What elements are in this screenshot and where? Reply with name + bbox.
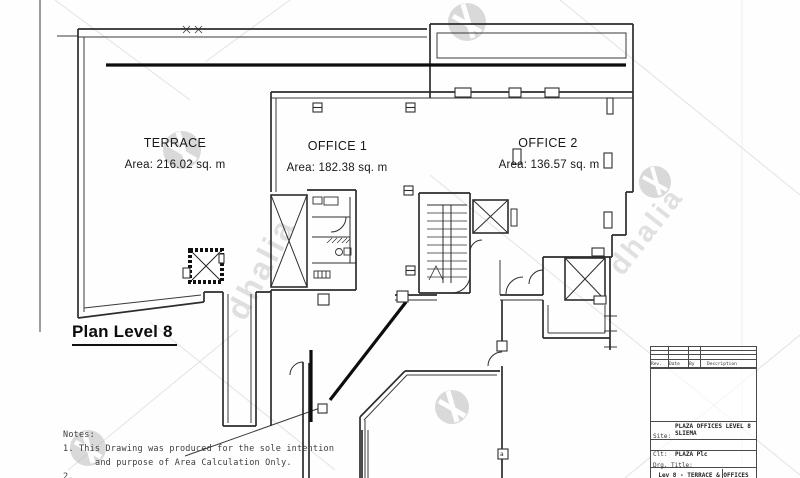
revision-description-area [651,369,756,422]
lift-shafts [271,195,605,300]
notes-line-2: and purpose of Area Calculation Only. [95,458,292,468]
terrace-area: Area: 216.02 sq. m [95,159,255,171]
terrace-label: TERRACE [112,136,238,150]
office1-label: OFFICE 1 [275,139,400,153]
office2-area: Area: 136.57 sq. m [474,159,624,171]
drawing-number-row: Drg. No. [651,468,756,478]
office2-label: OFFICE 2 [488,136,608,150]
title-block: Rev. Date By Description Site: PLAZA OFF… [650,346,757,478]
notes-heading: Notes: [63,430,95,440]
plan-title: Plan Level 8 [72,322,177,346]
floor-plan-page: dhalia dhalia [0,0,800,478]
description-header: Description [701,361,742,367]
staircase [427,205,467,283]
drawing-title-label: Drg. Title: [653,462,693,469]
notes-line-3: 2. [63,472,74,478]
inner-lines [40,0,633,478]
site-label: Site: [653,433,671,440]
office1-area: Area: 182.38 sq. m [258,162,416,174]
site-value-line1: PLAZA OFFICES LEVEL 8 [675,423,751,430]
site-value-line2: SLIEMA [675,430,751,437]
rev-header: Rev. [651,361,664,367]
date-header: Date [669,361,683,367]
client-row: Clt: PLAZA Plc [651,440,756,451]
revision-header-row: Rev. Date By Description [651,360,756,369]
site-row: Site: PLAZA OFFICES LEVEL 8 SLIEMA [651,422,756,440]
by-header: By [689,361,697,367]
notes-line-1: 1. This Drawing was produced for the sol… [63,444,334,454]
thick-walls [106,65,626,422]
door-letter-label: a [500,451,504,458]
skylight-shaft [183,250,224,282]
